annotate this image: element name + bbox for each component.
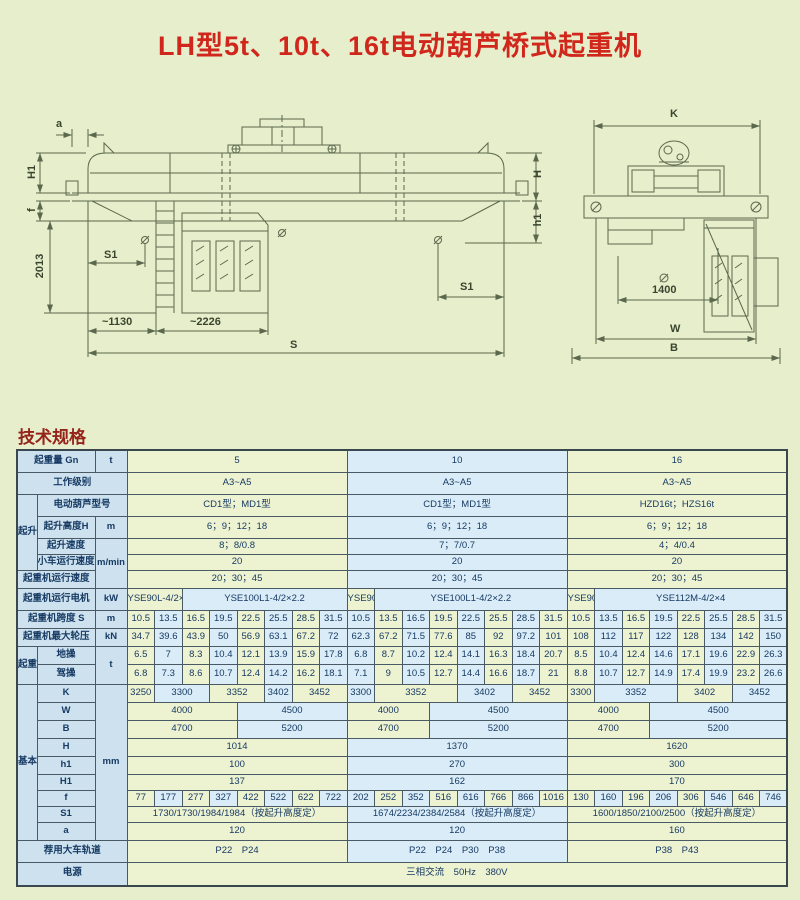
table-cell: 766 (485, 790, 513, 806)
table-cell: 6.8 (347, 646, 375, 664)
table-cell: 746 (760, 790, 788, 806)
table-cell: 19.5 (650, 610, 678, 628)
table-cell: 28.5 (292, 610, 320, 628)
table-cell: 10.5 (567, 610, 595, 628)
table-cell: 352 (402, 790, 430, 806)
table-cell: 160 (595, 790, 623, 806)
table-cell: 160 (567, 822, 787, 840)
table-cell: 7；7/0.7 (347, 538, 567, 554)
table-cell: W (37, 702, 95, 720)
table-cell: 77.6 (430, 628, 458, 646)
table-cell: 22.9 (732, 646, 760, 664)
table-cell: 6；9；12；18 (567, 516, 787, 538)
table-row: S11730/1730/1984/1984（按起升高度定）1674/2234/2… (17, 806, 787, 822)
table-cell: 13.9 (265, 646, 293, 664)
table-cell: 20 (347, 554, 567, 570)
table-cell: 18.4 (512, 646, 540, 664)
table-cell: 19.9 (705, 664, 733, 684)
table-cell: 277 (182, 790, 210, 806)
table-cell: 120 (347, 822, 567, 840)
table-cell: 622 (292, 790, 320, 806)
table-cell: 63.1 (265, 628, 293, 646)
table-cell: 3452 (512, 684, 567, 702)
table-row: a120120160 (17, 822, 787, 840)
table-cell: CD1型；MD1型 (347, 494, 567, 516)
table-cell: 25.5 (705, 610, 733, 628)
dim-label-2013: 2013 (34, 246, 46, 286)
table-cell: 28.5 (732, 610, 760, 628)
table-cell: 小车运行速度 (37, 554, 95, 570)
table-cell: YSE90L-4/2×1.5 (127, 588, 182, 610)
table-cell: 3402 (265, 684, 293, 702)
table-cell: 地操 (37, 646, 95, 664)
table-cell: 3452 (732, 684, 787, 702)
table-cell: 14.4 (457, 664, 485, 684)
table-cell: 22.5 (457, 610, 485, 628)
table-cell: 16.3 (485, 646, 513, 664)
table-cell: 10.4 (210, 646, 238, 664)
table-cell: 422 (237, 790, 265, 806)
table-cell: a (37, 822, 95, 840)
table-cell: 3352 (595, 684, 678, 702)
table-cell: 43.9 (182, 628, 210, 646)
side-view-svg (10, 115, 555, 365)
table-row: 起重机最大轮压kN34.739.643.95056.963.167.27262.… (17, 628, 787, 646)
table-cell: YSE90L-4/2×1.5 (347, 588, 375, 610)
table-row: 起重机总重地操t6.578.310.412.113.915.917.86.88.… (17, 646, 787, 664)
table-cell: 722 (320, 790, 348, 806)
table-cell: 1674/2234/2384/2584（按起升高度定） (347, 806, 567, 822)
table-cell: H1 (37, 774, 95, 790)
table-cell: 1016 (540, 790, 568, 806)
table-cell: 646 (732, 790, 760, 806)
table-cell: K (37, 684, 95, 702)
table-cell: 4000 (567, 702, 650, 720)
table-cell: 23.2 (732, 664, 760, 684)
table-cell: 117 (622, 628, 650, 646)
table-cell: 7.3 (155, 664, 183, 684)
table-cell: 18.1 (320, 664, 348, 684)
table-cell: P22 P24 (127, 840, 347, 862)
table-cell: 92 (485, 628, 513, 646)
table-cell: 72 (320, 628, 348, 646)
table-cell: 22.5 (237, 610, 265, 628)
table-cell: YSE112M-4/2×4 (595, 588, 788, 610)
section-heading: 技术规格 (18, 423, 86, 448)
table-cell: 起重机运行速度 (17, 570, 95, 588)
table-row: f771772773274225226227222022523525166167… (17, 790, 787, 806)
table-cell: 28.5 (512, 610, 540, 628)
table-cell: 5200 (237, 720, 347, 738)
table-cell: h1 (37, 756, 95, 774)
table-cell: 866 (512, 790, 540, 806)
table-cell: P22 P24 P30 P38 (347, 840, 567, 862)
table-cell: 工作级别 (17, 472, 127, 494)
table-cell: 驾操 (37, 664, 95, 684)
dim-label-b: B (670, 342, 678, 354)
table-cell: 1600/1850/2100/2500（按起升高度定） (567, 806, 787, 822)
table-row: H101413701620 (17, 738, 787, 756)
table-cell: mm (95, 684, 127, 840)
table-cell: kN (95, 628, 127, 646)
dim-label-2226: ~2226 (190, 316, 221, 328)
table-cell: 4700 (567, 720, 650, 738)
table-cell: 起重量 Gn (17, 450, 95, 472)
table-cell: A3~A5 (347, 472, 567, 494)
table-cell: 4500 (237, 702, 347, 720)
table-cell: 1620 (567, 738, 787, 756)
table-cell: 162 (347, 774, 567, 790)
table-cell: 31.5 (760, 610, 788, 628)
table-cell: 150 (760, 628, 788, 646)
table-cell: 20.7 (540, 646, 568, 664)
table-cell: 10.7 (595, 664, 623, 684)
table-cell: 3402 (677, 684, 732, 702)
table-row: 起升高度Hm6；9；12；186；9；12；186；9；12；18 (17, 516, 787, 538)
table-cell: 10.7 (210, 664, 238, 684)
dim-label-h1-right: h1 (532, 200, 544, 240)
table-cell: 荐用大车轨道 (17, 840, 127, 862)
table-row: 起重机运行速度20；30；4520；30；4520；30；45 (17, 570, 787, 588)
table-cell: P38 P43 (567, 840, 787, 862)
table-cell: 252 (375, 790, 403, 806)
table-row: 工作级别A3~A5A3~A5A3~A5 (17, 472, 787, 494)
table-cell: 522 (265, 790, 293, 806)
table-cell: 4700 (347, 720, 430, 738)
table-cell: 10.5 (347, 610, 375, 628)
table-cell: 6.8 (127, 664, 155, 684)
dim-label-h-right: H (532, 154, 544, 194)
table-cell: 4000 (127, 702, 237, 720)
table-row: H1137162170 (17, 774, 787, 790)
table-cell: 19.6 (705, 646, 733, 664)
table-cell: 1370 (347, 738, 567, 756)
dim-label-s1-left: S1 (104, 249, 117, 261)
table-cell: 17.8 (320, 646, 348, 664)
table-cell: 206 (650, 790, 678, 806)
dim-label-s: S (290, 339, 297, 351)
table-row: 小车运行速度202020 (17, 554, 787, 570)
table-cell: 5200 (650, 720, 788, 738)
table-cell: 15.9 (292, 646, 320, 664)
table-cell: 137 (127, 774, 347, 790)
table-cell: 19.5 (430, 610, 458, 628)
table-row: 起升速度m/min8；8/0.87；7/0.74；4/0.4 (17, 538, 787, 554)
table-cell: 16 (567, 450, 787, 472)
table-cell: 20；30；45 (567, 570, 787, 588)
dim-label-1400: 1400 (652, 284, 676, 296)
table-cell: 10.5 (402, 664, 430, 684)
table-cell: 电动葫芦型号 (37, 494, 127, 516)
table-cell: 起升机构 (17, 494, 37, 570)
table-cell: 26.6 (760, 664, 788, 684)
table-cell: 300 (567, 756, 787, 774)
table-cell: 306 (677, 790, 705, 806)
table-cell: 4500 (650, 702, 788, 720)
table-cell: 12.7 (430, 664, 458, 684)
table-cell: 67.2 (292, 628, 320, 646)
table-cell: 170 (567, 774, 787, 790)
table-cell: 85 (457, 628, 485, 646)
table-cell: 14.1 (457, 646, 485, 664)
table-cell: 130 (567, 790, 595, 806)
table-cell: YSE100L1-4/2×2.2 (182, 588, 347, 610)
table-cell: 三相交流 50Hz 380V (127, 862, 787, 886)
table-cell: 16.5 (622, 610, 650, 628)
table-row: 起重机跨度 Sm10.513.516.519.522.525.528.531.5… (17, 610, 787, 628)
table-cell: 122 (650, 628, 678, 646)
table-cell: 21 (540, 664, 568, 684)
table-cell: 13.5 (155, 610, 183, 628)
table-cell: YSE100L1-4/2×2.2 (375, 588, 568, 610)
table-cell: 31.5 (540, 610, 568, 628)
spec-table-body: 起重量 Gnt51016工作级别A3~A5A3~A5A3~A5起升机构电动葫芦型… (17, 450, 787, 886)
dim-label-h1-left: H1 (26, 152, 38, 192)
table-cell: 134 (705, 628, 733, 646)
table-cell: 电源 (17, 862, 127, 886)
table-cell: 50 (210, 628, 238, 646)
table-row: 荐用大车轨道P22 P24P22 P24 P30 P38P38 P43 (17, 840, 787, 862)
table-cell: 起重机运行电机 (17, 588, 95, 610)
table-cell: 26.3 (760, 646, 788, 664)
table-cell: 25.5 (265, 610, 293, 628)
table-cell: m (95, 516, 127, 538)
table-cell: 97.2 (512, 628, 540, 646)
table-cell: 3250 (127, 684, 155, 702)
table-cell: 7.1 (347, 664, 375, 684)
table-cell: t (95, 646, 127, 684)
table-cell: 20；30；45 (127, 570, 347, 588)
table-cell: 3352 (375, 684, 458, 702)
dim-label-a: a (56, 118, 62, 130)
table-cell: 100 (127, 756, 347, 774)
table-cell: 5 (127, 450, 347, 472)
table-cell: f (37, 790, 95, 806)
table-cell: 17.1 (677, 646, 705, 664)
table-cell: 起重机跨度 S (17, 610, 95, 628)
table-cell: 13.5 (595, 610, 623, 628)
table-cell: B (37, 720, 95, 738)
table-cell: 12.4 (622, 646, 650, 664)
table-cell: 4700 (127, 720, 237, 738)
table-cell: 20；30；45 (347, 570, 567, 588)
table-cell: 4500 (430, 702, 568, 720)
table-cell: 25.5 (485, 610, 513, 628)
table-cell: A3~A5 (567, 472, 787, 494)
table-cell: 10 (347, 450, 567, 472)
table-cell: A3~A5 (127, 472, 347, 494)
end-view-drawing: K 1400 W B (556, 106, 796, 371)
table-cell: 12.1 (237, 646, 265, 664)
table-row: 驾操6.87.38.610.712.414.216.218.17.1910.51… (17, 664, 787, 684)
dim-label-w: W (670, 323, 680, 335)
table-cell: 6；9；12；18 (347, 516, 567, 538)
table-cell: 4000 (347, 702, 430, 720)
table-cell: 196 (622, 790, 650, 806)
table-cell: 16.5 (402, 610, 430, 628)
table-cell: 起升速度 (37, 538, 95, 554)
table-row: W400045004000450040004500 (17, 702, 787, 720)
page: { "page": { "title": "LH型5t、10t、16t电动葫芦桥… (0, 0, 800, 900)
table-cell: 8.5 (567, 646, 595, 664)
table-row: 电源三相交流 50Hz 380V (17, 862, 787, 886)
table-cell: 270 (347, 756, 567, 774)
table-cell: 3452 (292, 684, 347, 702)
table-cell: 120 (127, 822, 347, 840)
side-view-drawing: a H1 f 2013 S1 ~1130 ~2226 S H h1 S1 (10, 115, 555, 365)
table-row: 起升机构电动葫芦型号CD1型；MD1型CD1型；MD1型HZD16t；HZS16… (17, 494, 787, 516)
table-cell: 14.9 (650, 664, 678, 684)
table-cell: HZD16t；HZS16t (567, 494, 787, 516)
table-cell: S1 (37, 806, 95, 822)
table-row: 基本尺寸Kmm325033003352340234523300335234023… (17, 684, 787, 702)
table-cell: t (95, 450, 127, 472)
table-cell: 546 (705, 790, 733, 806)
table-cell: 56.9 (237, 628, 265, 646)
table-cell: 8；8/0.8 (127, 538, 347, 554)
table-cell: 327 (210, 790, 238, 806)
table-cell: 17.4 (677, 664, 705, 684)
table-cell: 12.4 (237, 664, 265, 684)
table-cell: 3300 (567, 684, 595, 702)
table-cell: 10.2 (402, 646, 430, 664)
table-cell: 16.2 (292, 664, 320, 684)
table-cell: 31.5 (320, 610, 348, 628)
table-cell: 142 (732, 628, 760, 646)
table-cell: 基本尺寸 (17, 684, 37, 840)
table-row: B470052004700520047005200 (17, 720, 787, 738)
table-cell: 6.5 (127, 646, 155, 664)
table-cell: 3352 (210, 684, 265, 702)
table-cell: 62.3 (347, 628, 375, 646)
table-cell: 4；4/0.4 (567, 538, 787, 554)
table-cell: 16.6 (485, 664, 513, 684)
table-cell: 128 (677, 628, 705, 646)
table-cell: m (95, 610, 127, 628)
table-cell: 7 (155, 646, 183, 664)
table-cell: 20 (127, 554, 347, 570)
table-cell: 19.5 (210, 610, 238, 628)
table-cell: 14.6 (650, 646, 678, 664)
table-cell: 516 (430, 790, 458, 806)
table-cell: CD1型；MD1型 (127, 494, 347, 516)
dim-label-1130: ~1130 (102, 316, 132, 328)
dim-label-f: f (26, 190, 38, 230)
table-cell: YSE90L-4/2×1.5 (567, 588, 595, 610)
spec-table: 起重量 Gnt51016工作级别A3~A5A3~A5A3~A5起升机构电动葫芦型… (16, 449, 788, 887)
table-cell: 13.5 (375, 610, 403, 628)
table-cell: 20 (567, 554, 787, 570)
table-cell: 5200 (430, 720, 568, 738)
table-cell: 1014 (127, 738, 347, 756)
table-cell: 起升高度H (37, 516, 95, 538)
table-cell: 22.5 (677, 610, 705, 628)
table-cell: 起重机最大轮压 (17, 628, 95, 646)
table-cell: 112 (595, 628, 623, 646)
table-cell: 8.8 (567, 664, 595, 684)
table-cell: 起重机总重 (17, 646, 37, 684)
dim-label-s1-right: S1 (460, 281, 473, 293)
table-row: 起重量 Gnt51016 (17, 450, 787, 472)
table-cell: 10.4 (595, 646, 623, 664)
table-row: 起重机运行电机kWYSE90L-4/2×1.5YSE100L1-4/2×2.2Y… (17, 588, 787, 610)
table-cell: kW (95, 588, 127, 610)
table-cell: 18.7 (512, 664, 540, 684)
table-cell: 16.5 (182, 610, 210, 628)
table-cell: 3300 (155, 684, 210, 702)
table-cell: 1730/1730/1984/1984（按起升高度定） (127, 806, 347, 822)
page-title: LH型5t、10t、16t电动葫芦桥式起重机 (0, 24, 800, 63)
table-cell: 6；9；12；18 (127, 516, 347, 538)
table-cell: 177 (155, 790, 183, 806)
table-cell: 3300 (347, 684, 375, 702)
table-cell: m/min (95, 538, 127, 588)
table-cell: 77 (127, 790, 155, 806)
table-cell: 10.5 (127, 610, 155, 628)
dim-label-k: K (670, 108, 678, 120)
table-cell: 8.3 (182, 646, 210, 664)
table-cell: 101 (540, 628, 568, 646)
table-cell: 71.5 (402, 628, 430, 646)
table-cell: 8.7 (375, 646, 403, 664)
table-cell: 9 (375, 664, 403, 684)
table-cell: 39.6 (155, 628, 183, 646)
table-cell: 616 (457, 790, 485, 806)
table-row: h1100270300 (17, 756, 787, 774)
table-cell: 202 (347, 790, 375, 806)
table-cell: 12.4 (430, 646, 458, 664)
table-cell: 12.7 (622, 664, 650, 684)
table-cell: 108 (567, 628, 595, 646)
table-cell: 14.2 (265, 664, 293, 684)
table-cell: H (37, 738, 95, 756)
table-cell: 3402 (457, 684, 512, 702)
table-cell: 67.2 (375, 628, 403, 646)
table-cell: 8.6 (182, 664, 210, 684)
table-cell: 34.7 (127, 628, 155, 646)
